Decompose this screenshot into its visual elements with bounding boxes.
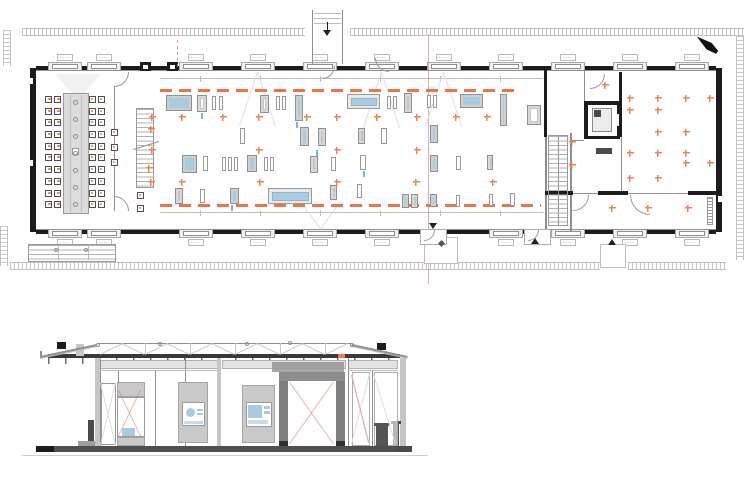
transom-panel [348,360,398,369]
transom-line [100,370,218,371]
truss-post [280,343,281,354]
roof-top-chord [97,343,352,344]
slab-end [36,446,54,452]
truss-post [145,343,146,354]
truss-post [190,343,191,354]
truss-node [245,342,249,346]
wall-right-section [400,358,406,446]
poster-graphic [186,408,195,417]
architectural-sheet [0,0,750,500]
screen-graphic [248,405,262,418]
ground-line [22,455,428,456]
section-marker-orange [338,354,345,358]
portal-header [272,362,344,372]
slab-end [396,446,412,452]
poster-graphic [197,409,203,411]
plinth-step [78,441,95,446]
floor-slab [38,446,410,452]
truss-node [350,343,354,347]
screen-graphic [264,411,270,414]
exhibit-object [122,428,135,436]
truss-node [96,343,100,347]
mullion [372,370,373,446]
truss-post [235,343,236,354]
portal-frame [336,372,345,448]
truss-post [325,343,326,354]
truss-node [158,342,162,346]
portal-frame [279,372,288,448]
truss-node [288,341,292,345]
portal-beam [279,372,345,381]
display-case-base [117,437,145,446]
poster-graphic [197,413,203,415]
mullion [155,370,156,446]
mullion [348,358,349,446]
pilaster [376,426,388,446]
screen-graphic [264,406,270,409]
screen-caption [248,420,268,424]
transom-line [348,370,398,371]
building-section [0,0,750,500]
wall-mid-section [217,358,221,446]
roof-vent [57,342,66,349]
transom-panel [100,360,218,369]
poster-caption [184,421,203,424]
